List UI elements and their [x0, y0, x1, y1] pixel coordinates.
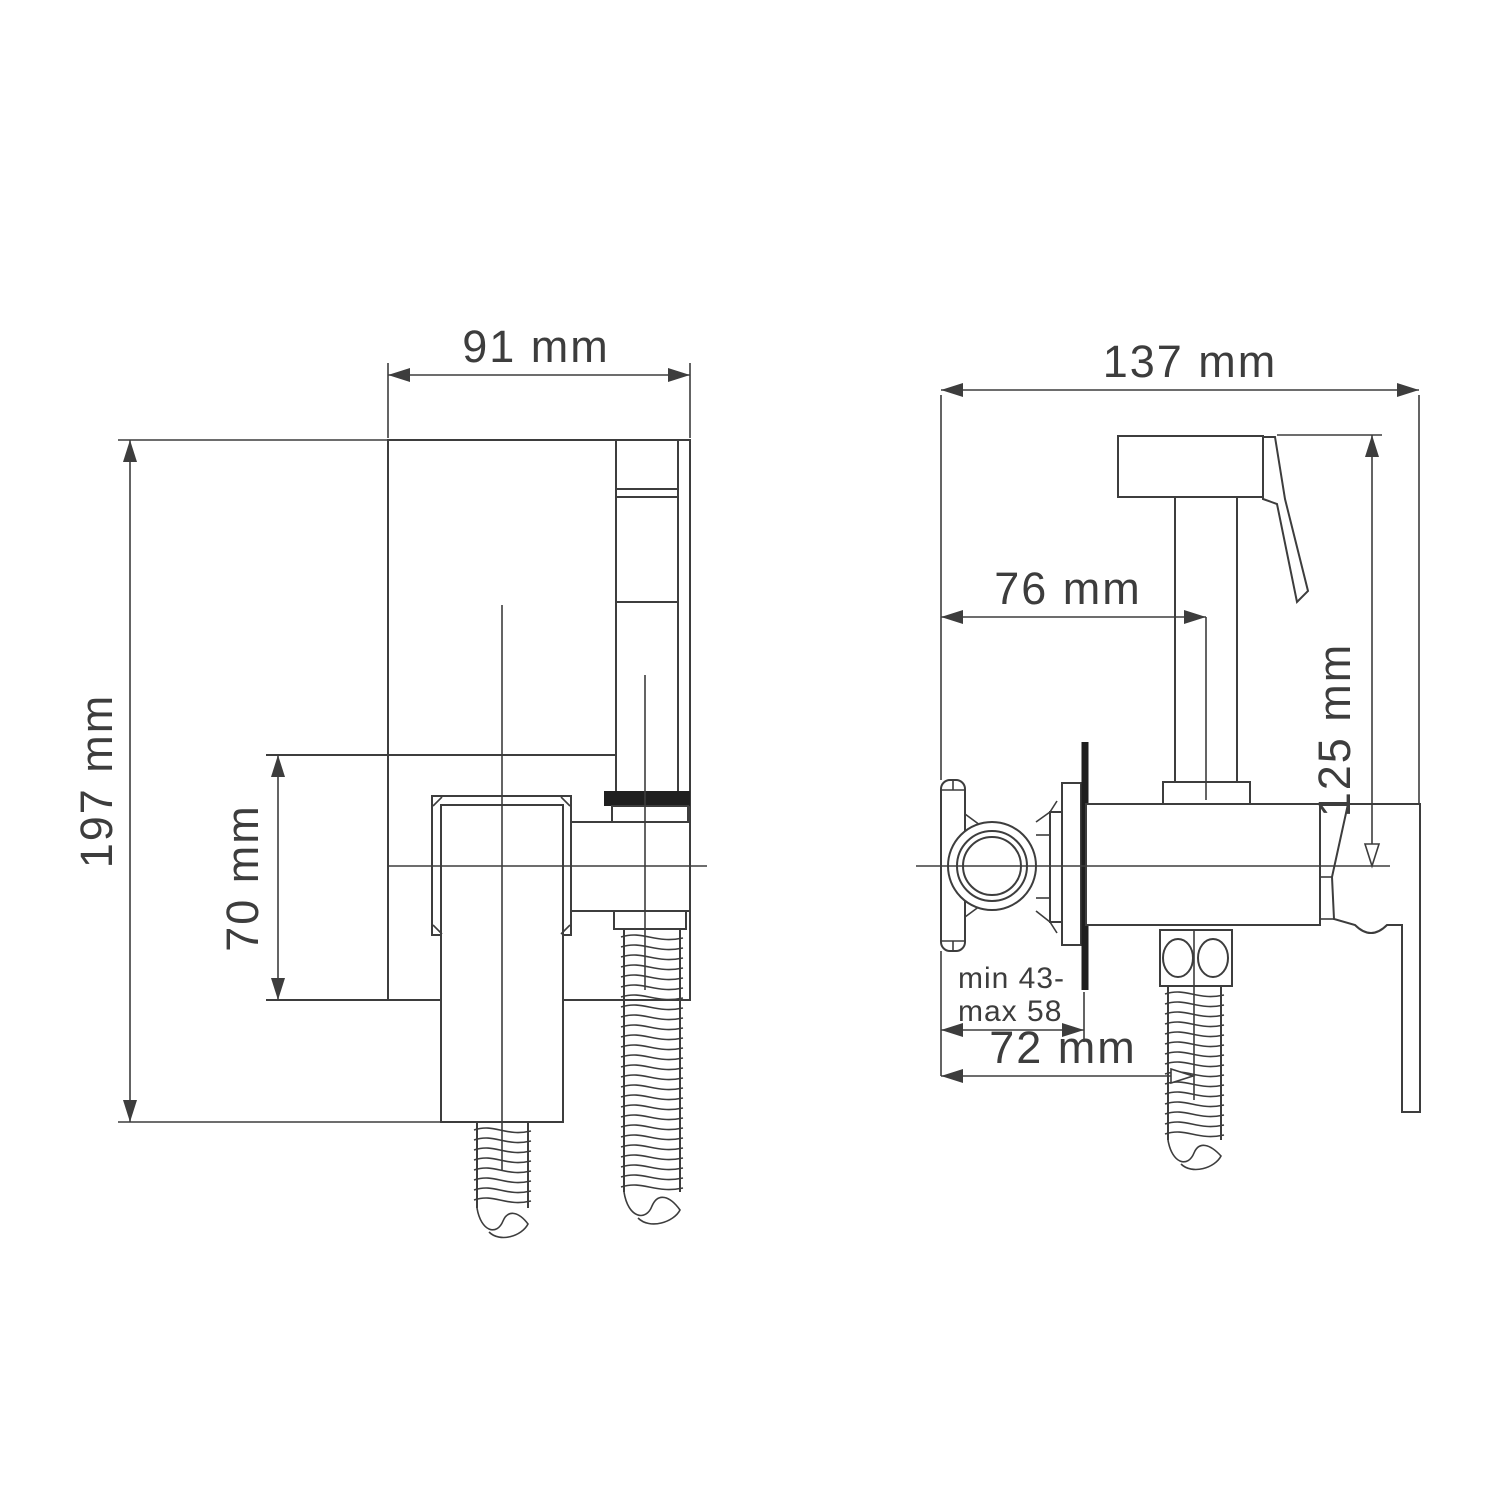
side-depth-dimension-label: 137 mm — [1103, 336, 1278, 387]
front-hose-right — [621, 929, 683, 1224]
side-spray-offset-label: 76 mm — [994, 563, 1142, 614]
spray-head-lever — [1263, 437, 1308, 602]
rubber-ring — [604, 791, 690, 806]
dimension-front-outlet: 70 mm — [217, 755, 285, 1000]
front-width-dimension-label: 91 mm — [462, 321, 610, 372]
hose-offset-dimension-label: 72 mm — [989, 1022, 1137, 1073]
side-hose-block — [1160, 930, 1232, 986]
front-hand-shower — [604, 440, 690, 822]
dimension-front-width: 91 mm — [388, 321, 690, 438]
bidet-mixer-dimension-drawing: 91 mm 197 mm 70 mm — [0, 0, 1500, 1500]
side-height-dimension-label: 125 mm — [1309, 643, 1360, 818]
dimension-hose-offset: 72 mm — [941, 1022, 1193, 1083]
dimension-side-height: 125 mm — [1277, 435, 1390, 866]
dimension-side-spray-offset: 76 mm — [941, 563, 1206, 624]
front-view: 91 mm 197 mm 70 mm — [71, 321, 707, 1237]
wall-range-label-line1: min 43- — [958, 962, 1065, 995]
front-valve-body — [563, 822, 690, 929]
front-height-dimension-label: 197 mm — [71, 694, 122, 869]
dimension-side-depth: 137 mm — [941, 336, 1419, 397]
side-hand-shower — [1118, 436, 1308, 804]
front-outlet-dimension-label: 70 mm — [217, 804, 268, 952]
technical-drawing-page: 91 mm 197 mm 70 mm — [0, 0, 1500, 1500]
side-view: 137 mm 76 mm 125 mm min 43- max 58 — [916, 336, 1420, 1169]
